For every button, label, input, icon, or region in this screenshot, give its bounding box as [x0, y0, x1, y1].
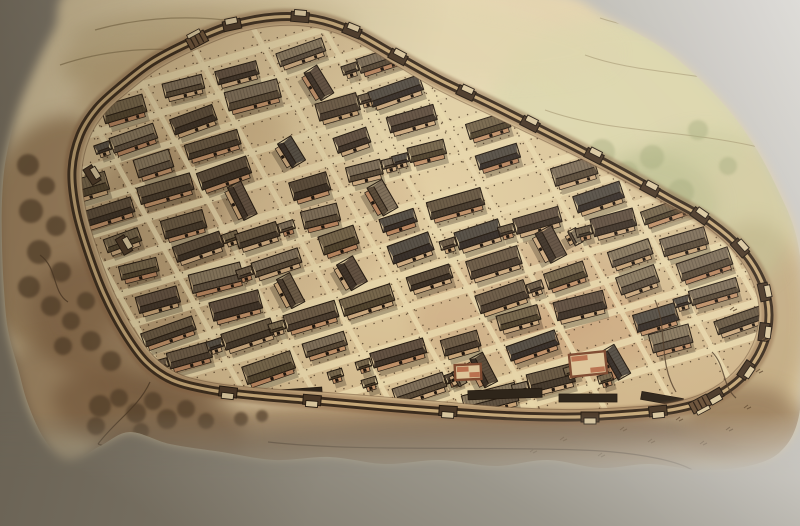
photo-vignette — [0, 0, 800, 526]
photo-of-illustration: Photographed watercolor-and-ink aerial r… — [0, 0, 800, 526]
reconstruction-figure: Photographed watercolor-and-ink aerial r… — [0, 0, 800, 526]
illustration-canvas — [0, 0, 800, 526]
